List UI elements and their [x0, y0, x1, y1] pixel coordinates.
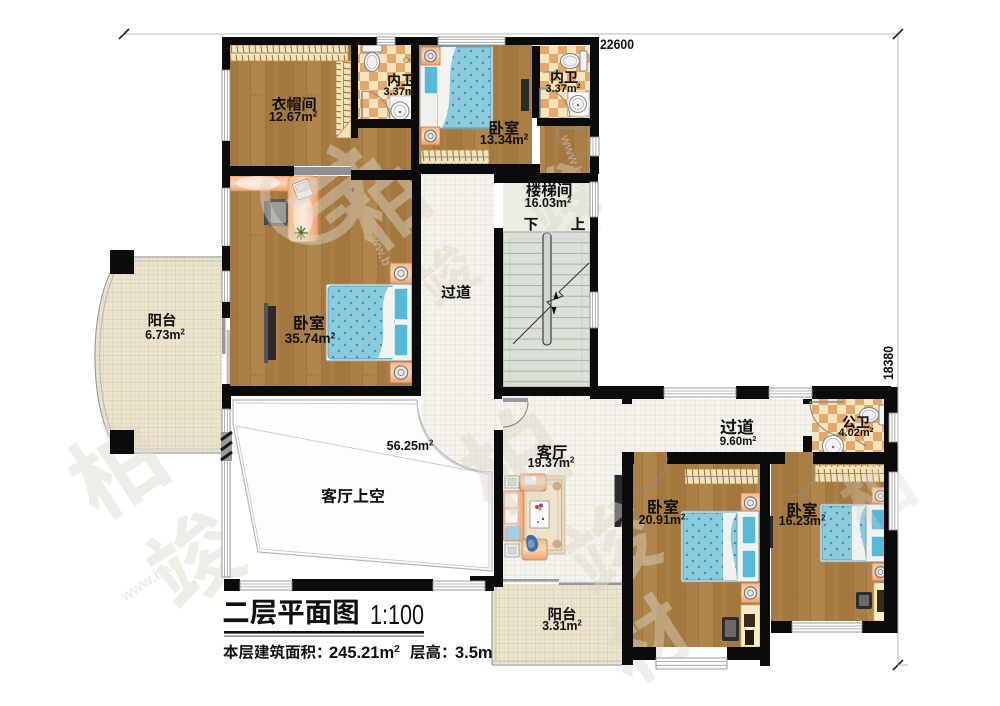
svg-text:1:100: 1:100: [370, 599, 424, 630]
svg-text:9.60m2: 9.60m2: [720, 435, 757, 448]
svg-text:56.25m2: 56.25m2: [387, 439, 434, 453]
svg-text:3.37m2: 3.37m2: [546, 83, 581, 95]
svg-text:12.67m2: 12.67m2: [269, 109, 318, 124]
svg-text:16.23m2: 16.23m2: [779, 514, 826, 528]
svg-text:6.73m2: 6.73m2: [145, 328, 185, 342]
svg-text:35.74m2: 35.74m2: [285, 330, 336, 346]
svg-text:19.37m2: 19.37m2: [528, 456, 575, 470]
svg-text:3.37m2: 3.37m2: [384, 86, 419, 98]
svg-text:20.91m2: 20.91m2: [639, 513, 686, 527]
svg-text:3.31m2: 3.31m2: [542, 619, 582, 633]
svg-text:22600: 22600: [600, 37, 634, 52]
svg-text:4.02m2: 4.02m2: [839, 427, 874, 439]
svg-text:16.03m2: 16.03m2: [525, 196, 572, 210]
svg-text:245.21m2: 245.21m2: [329, 644, 400, 662]
svg-text:3.5m: 3.5m: [455, 644, 493, 662]
svg-text:13.34m2: 13.34m2: [480, 132, 529, 147]
svg-text:18380: 18380: [881, 346, 896, 380]
